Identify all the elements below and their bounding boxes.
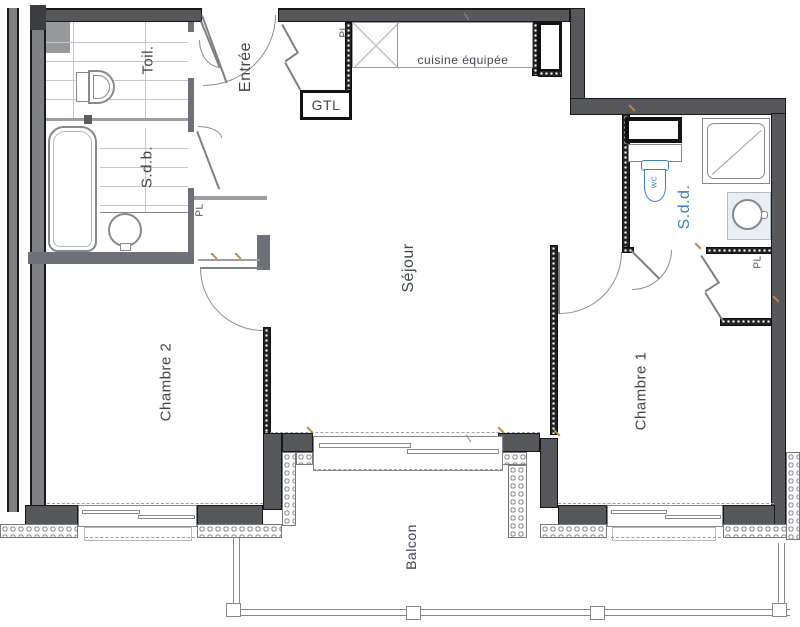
room-label-bedroom2: Chambre 2 [158,343,175,422]
room-label-kitchen: cuisine équipée [418,53,509,67]
wall-living-stub-right [498,433,540,452]
bedroom1-window-ledge [612,527,716,541]
balcony-edge-left [239,538,240,610]
sink-pedestal [120,243,131,251]
dashed-line [611,537,721,538]
bedroom2-door-arc [200,268,263,331]
wall-step-horizontal [570,98,786,115]
closet-label-entry: PL [339,24,350,37]
wc-label: WC [652,176,659,189]
gtl-label: GTL [312,97,341,113]
balcony-post [590,606,605,620]
partition-kitchen-foot [538,70,562,77]
insulation-step-left [282,452,296,526]
living-window-sash [407,449,499,454]
bedroom1-window-sash [665,515,721,519]
showerroom-door-arc [632,250,672,290]
bedroom1-window-sash [611,510,667,514]
room-label-bedroom1: Chambre 1 [633,352,650,431]
wall-living-stub-left [282,433,313,452]
wall-step-bedroom2 [263,433,282,510]
room-label-entree: Entrée [237,42,255,92]
bedroom2-window-sash [138,515,195,519]
wall-bottom-bedroom2-b [197,505,263,526]
wall-topright-corner [570,8,585,103]
wall-bottom-bedroom1-a [558,505,607,525]
dashed-line [558,503,774,504]
bathtub-inner [53,131,92,247]
insulation-bottom-bedroom2 [197,524,282,538]
wall-toilet-bath-divider [46,118,188,121]
wall-bath-right-b [188,78,194,132]
dashed-line [265,432,540,433]
room-label-balcony: Balcon [403,524,419,570]
bathroom-sink [108,213,142,247]
entry-closet-door [281,24,299,54]
showerroom-shaft [625,117,682,143]
bathroom-door-leaf [196,131,220,190]
partition-closet-bedroom1-top [706,247,772,254]
dim-tick [694,242,701,249]
insulation-window-right [502,452,527,465]
bedroom1-closet-door [704,292,723,321]
bedroom1-door-arc [560,252,622,314]
insulation-step-right [508,465,527,538]
wall-bath-right-a [188,22,194,32]
wall-closet-hall-top [194,196,267,200]
wall-top-right [278,8,570,22]
balcony-post [226,603,241,617]
dashed-line [85,537,195,538]
closet-hall-door-line [198,259,260,261]
entry-closet-door [285,51,299,62]
partition-closet-bedroom1-bottom [720,318,772,326]
wall-bath-bottom [28,252,194,264]
room-label-toilet: Toil. [140,45,157,74]
closet-label-bedroom1: PL [753,255,764,268]
wall-step-bedroom1 [540,438,558,508]
bedroom2-window-ledge [84,527,192,541]
living-window-sash [319,443,411,448]
toilet-floor-tiles [46,24,188,118]
closet-label-hall: PL [195,203,206,216]
room-label-living: Séjour [400,243,418,292]
balcony-railing [232,609,790,610]
balcony-railing [232,615,790,616]
wall-bottom-bedroom1-b [723,505,775,525]
room-label-showerroom: S.d.d. [676,185,694,230]
bathroom-door-arc [198,126,222,138]
balcony-edge-right [778,543,779,610]
balcony-edge-right [784,543,785,610]
bedroom1-closet-door [700,255,720,284]
wall-top-left [30,8,202,22]
wall-bedroom2-door-jamb [257,235,270,270]
wall-bottom-bedroom2-a [25,505,78,526]
partition-living-bedroom1 [550,245,558,435]
balcony-post [772,603,787,617]
room-label-bathroom: S.d.b. [139,146,156,188]
floor-plan: GTL WC [0,0,800,627]
insulation-bottom-bedroom1-a [540,524,607,538]
balcony-post [406,606,421,620]
entry-closet-door [284,62,301,90]
partition-living-bedroom2 [263,327,271,433]
insulation-window-left [296,452,313,465]
washbasin-tap [761,211,768,219]
dashed-line [47,503,263,504]
bedroom1-closet-door [705,281,720,292]
insulation-bottom-left [0,524,78,538]
wall-left-cap [30,5,46,30]
bedroom2-window-sash [82,510,140,514]
wall-left-outer [7,8,19,512]
kitchen-column [538,22,562,72]
wall-right [771,113,786,526]
washbasin [732,199,763,230]
dashed-line [313,469,503,470]
insulation-right-wall [786,452,800,540]
tile-line [73,22,74,118]
balcony-edge-left [233,538,234,610]
